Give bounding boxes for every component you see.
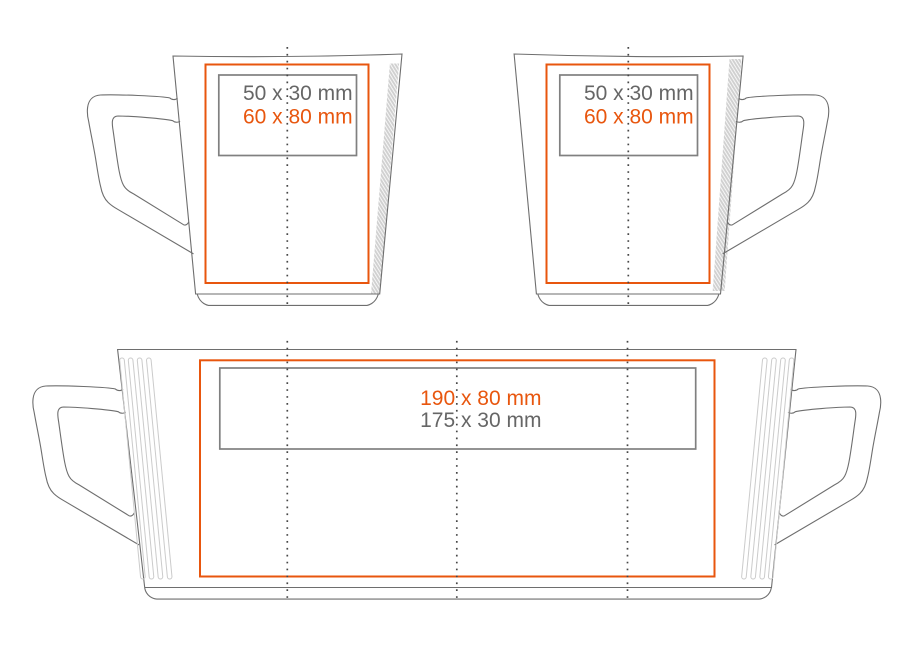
svg-text:50 x 30 mm: 50 x 30 mm (584, 82, 694, 105)
svg-text:175 x 30 mm: 175 x 30 mm (420, 409, 541, 432)
svg-text:190 x 80 mm: 190 x 80 mm (420, 387, 541, 410)
svg-text:60 x 80 mm: 60 x 80 mm (584, 105, 694, 128)
svg-text:50 x 30 mm: 50 x 30 mm (243, 82, 353, 105)
svg-text:60 x 80 mm: 60 x 80 mm (243, 105, 353, 128)
